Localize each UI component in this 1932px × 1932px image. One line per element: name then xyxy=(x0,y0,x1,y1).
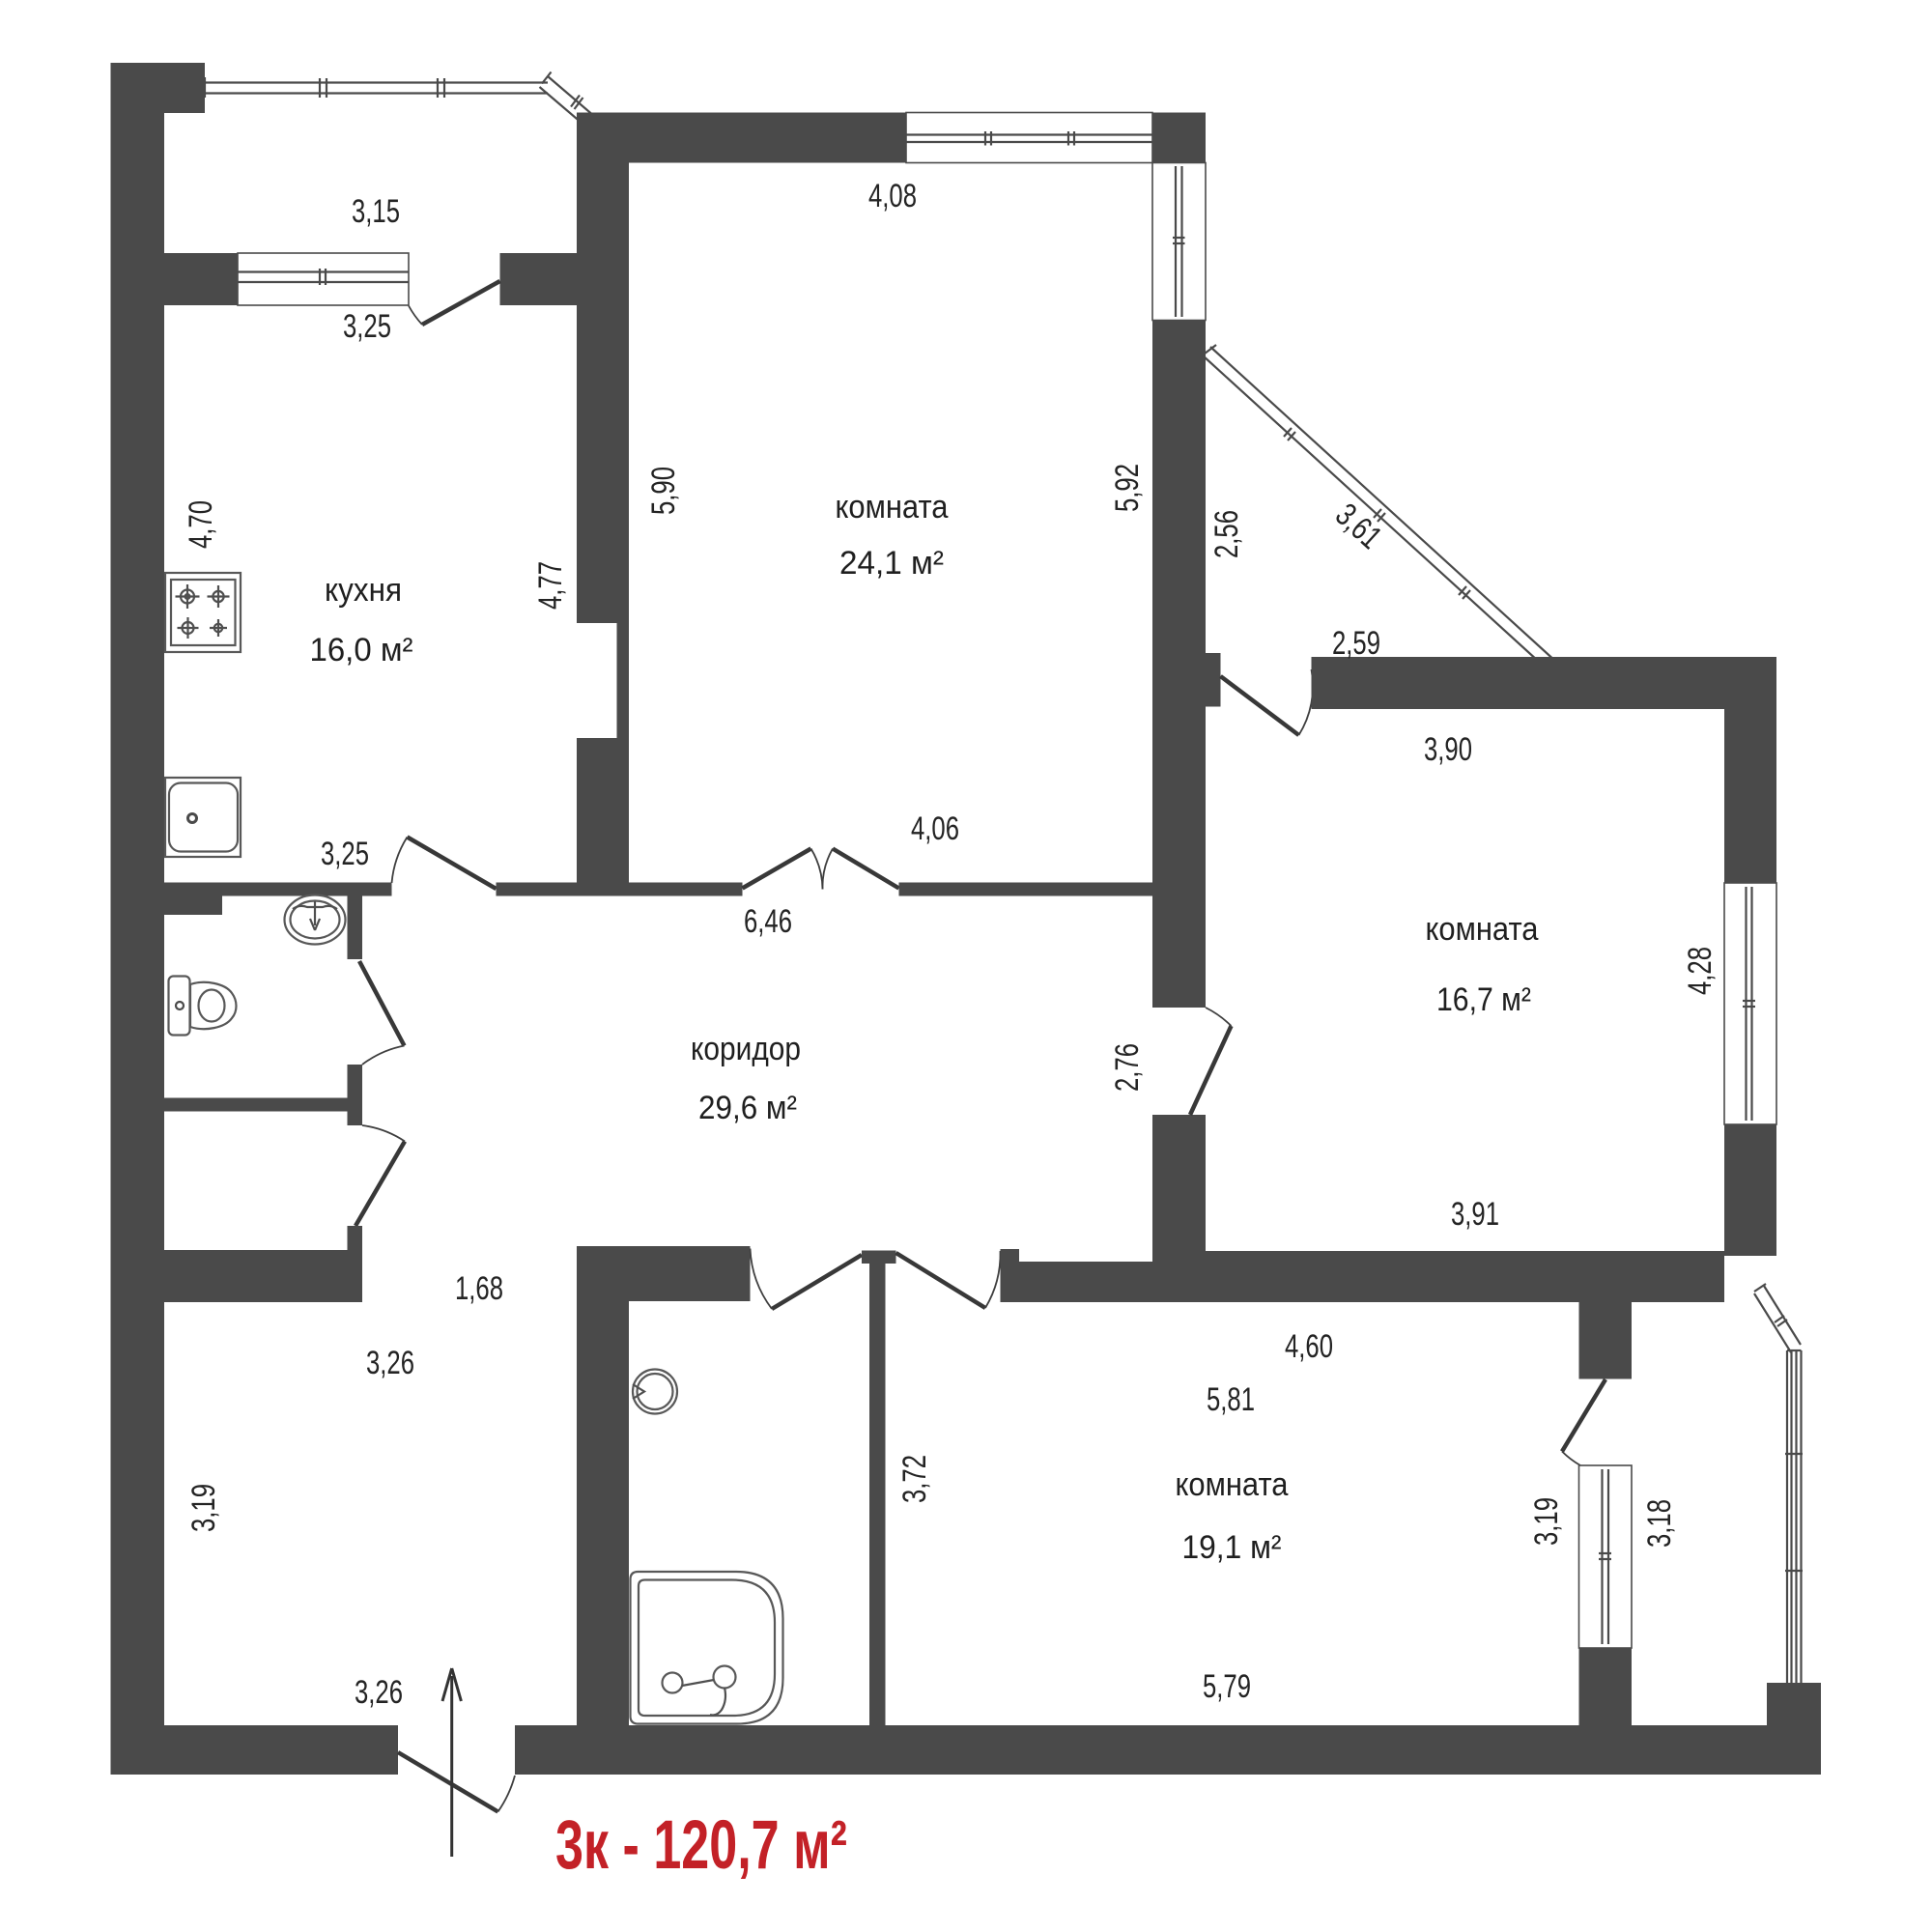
svg-text:3,25: 3,25 xyxy=(321,836,369,872)
svg-text:5,81: 5,81 xyxy=(1207,1381,1255,1418)
svg-text:3,25: 3,25 xyxy=(343,308,391,345)
svg-text:3к - 120,7 м²: 3к - 120,7 м² xyxy=(555,1807,847,1884)
svg-text:комната: комната xyxy=(836,489,949,526)
svg-text:3,19: 3,19 xyxy=(185,1484,222,1532)
svg-text:4,08: 4,08 xyxy=(868,178,917,214)
svg-text:коридор: коридор xyxy=(691,1031,801,1067)
svg-text:2,76: 2,76 xyxy=(1109,1043,1146,1092)
svg-text:3,19: 3,19 xyxy=(1528,1497,1565,1546)
svg-text:комната: комната xyxy=(1176,1466,1289,1503)
svg-text:5,79: 5,79 xyxy=(1203,1668,1251,1705)
svg-text:16,0 м²: 16,0 м² xyxy=(310,632,413,668)
svg-text:24,1 м²: 24,1 м² xyxy=(839,545,944,582)
svg-text:3,91: 3,91 xyxy=(1451,1196,1499,1233)
svg-text:2,59: 2,59 xyxy=(1332,625,1380,662)
svg-text:3,26: 3,26 xyxy=(366,1345,414,1381)
svg-text:5,90: 5,90 xyxy=(645,467,682,515)
svg-text:3,15: 3,15 xyxy=(352,193,400,230)
svg-text:кухня: кухня xyxy=(325,572,402,609)
svg-text:1,68: 1,68 xyxy=(455,1270,503,1307)
svg-text:19,1 м²: 19,1 м² xyxy=(1182,1529,1282,1566)
svg-text:4,77: 4,77 xyxy=(532,561,569,610)
svg-text:3,18: 3,18 xyxy=(1641,1499,1678,1548)
svg-text:16,7 м²: 16,7 м² xyxy=(1436,981,1531,1018)
svg-text:3,72: 3,72 xyxy=(896,1455,933,1503)
svg-text:2,56: 2,56 xyxy=(1208,510,1245,558)
svg-text:3,90: 3,90 xyxy=(1424,731,1472,768)
svg-text:4,70: 4,70 xyxy=(183,500,219,549)
svg-text:4,60: 4,60 xyxy=(1285,1328,1333,1365)
svg-text:3,26: 3,26 xyxy=(355,1674,403,1711)
svg-text:4,28: 4,28 xyxy=(1682,947,1719,995)
svg-text:комната: комната xyxy=(1426,911,1539,948)
svg-text:6,46: 6,46 xyxy=(744,903,792,940)
svg-text:29,6 м²: 29,6 м² xyxy=(698,1090,797,1126)
svg-text:4,06: 4,06 xyxy=(911,810,959,847)
svg-text:5,92: 5,92 xyxy=(1109,464,1146,512)
